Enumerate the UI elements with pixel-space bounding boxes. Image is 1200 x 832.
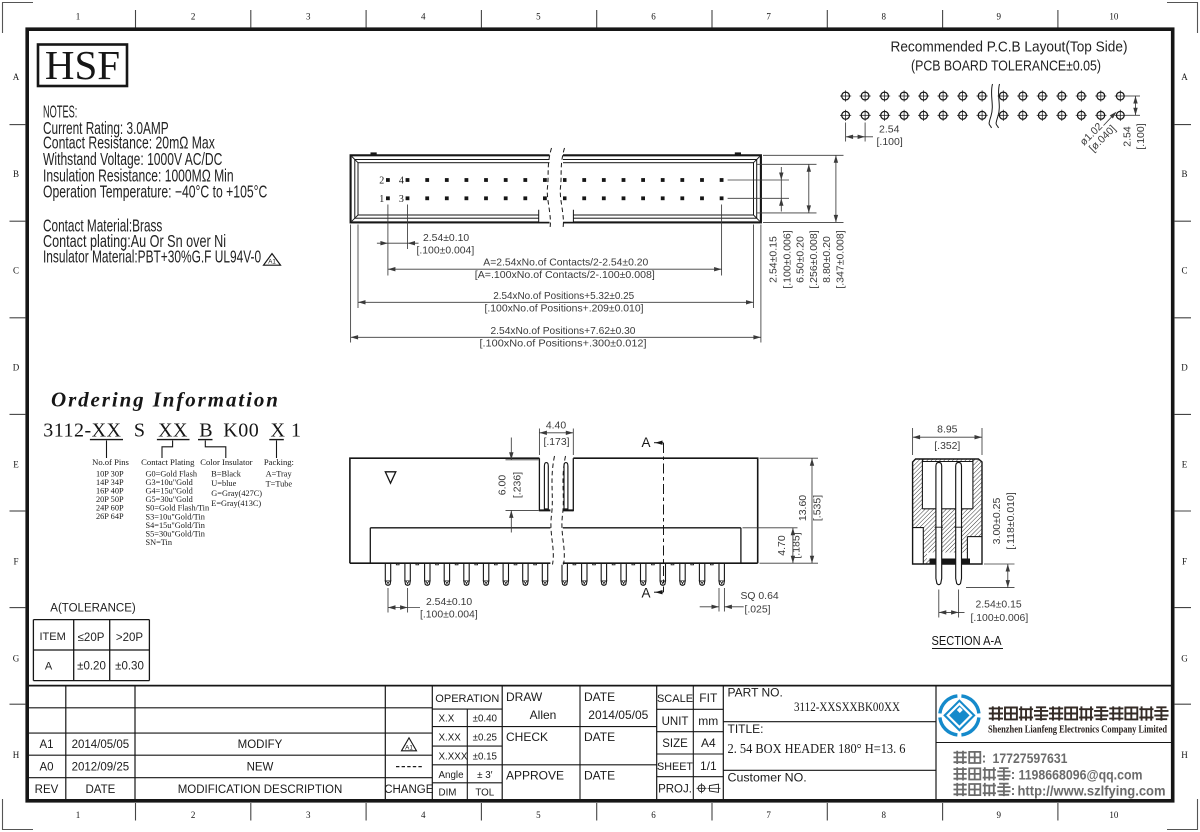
svg-text:9: 9 [997,12,1002,22]
svg-text:[.100±0.004]: [.100±0.004] [420,610,478,621]
svg-text:2.54±0.10: 2.54±0.10 [423,233,469,244]
svg-text:D: D [13,363,20,373]
svg-text:6: 6 [651,12,656,22]
svg-text:A4: A4 [701,736,716,750]
svg-text:DATE: DATE [584,769,615,783]
svg-text:H: H [13,750,20,760]
svg-text:XX: XX [92,419,122,441]
svg-text:[.100±0.004]: [.100±0.004] [417,246,475,257]
svg-text:DIM: DIM [439,787,457,798]
svg-text:2: 2 [379,176,384,187]
svg-text:3112-: 3112- [43,419,91,441]
svg-text:Shenzhen Lianfeng Electronics: Shenzhen Lianfeng Electronics Company Li… [988,723,1167,735]
svg-text:DATE: DATE [584,730,615,744]
svg-text:E: E [13,460,19,470]
svg-text:SN=Tin: SN=Tin [146,538,173,547]
svg-text:CHANGE: CHANGE [384,784,434,796]
svg-text:B: B [13,169,19,179]
svg-text:MODIFY: MODIFY [238,739,283,751]
svg-text:SECTION A-A: SECTION A-A [932,634,1003,648]
svg-text:PART NO.: PART NO. [728,685,783,699]
svg-text:[.173]: [.173] [544,437,570,448]
svg-text:Operation Temperature: −40°C t: Operation Temperature: −40°C to +105°C [43,182,267,202]
svg-text:E=Gray(413C): E=Gray(413C) [211,499,261,508]
svg-text:Recommended P.C.B Layout(Top S: Recommended P.C.B Layout(Top Side) [891,40,1128,56]
svg-text:6: 6 [651,810,656,820]
svg-text::: : [1011,783,1016,798]
svg-text:[.352]: [.352] [934,441,960,452]
svg-text:H: H [1181,750,1188,760]
svg-text:[.100xNo.of Positions+.209±0.0: [.100xNo.of Positions+.209±0.010] [485,304,644,315]
svg-text:SCALE: SCALE [657,693,693,705]
svg-text:[.100]: [.100] [877,136,903,148]
svg-text:F: F [13,556,18,566]
svg-text:Angle: Angle [439,770,465,781]
svg-text:S: S [134,419,146,441]
svg-text:FIT: FIT [699,691,718,705]
svg-text:1/1: 1/1 [700,759,717,773]
svg-text:[.100]: [.100] [1135,123,1147,149]
svg-text:TOL: TOL [475,787,494,798]
svg-text:3: 3 [306,12,311,22]
svg-text:A1: A1 [268,259,276,266]
svg-text:DATE: DATE [584,690,615,704]
svg-text:≤20P: ≤20P [78,632,105,644]
svg-text:1: 1 [379,194,384,205]
svg-text:6.00: 6.00 [496,475,508,496]
svg-text:Color Insulator: Color Insulator [200,457,252,467]
svg-text:A1: A1 [405,744,413,751]
svg-text:F: F [1182,556,1187,566]
svg-text:K00: K00 [223,419,259,441]
svg-text:G=Gray(427C): G=Gray(427C) [211,489,262,498]
svg-text:2.54: 2.54 [1122,126,1134,147]
svg-text:±0.25: ±0.25 [473,733,498,744]
svg-text:2. 54 BOX HEADER 180° H=13. 6: 2. 54 BOX HEADER 180° H=13. 6 [728,741,906,756]
svg-text:C: C [1181,266,1187,276]
svg-text:[.256±0.008]: [.256±0.008] [808,230,820,288]
svg-text::: : [1011,767,1016,782]
svg-text:[.100±0.006]: [.100±0.006] [782,230,794,288]
svg-text:REV: REV [35,784,59,796]
svg-text:A: A [45,660,53,672]
svg-text:8: 8 [881,810,886,820]
svg-text:No.of Pins: No.of Pins [92,457,129,467]
svg-text:13.60: 13.60 [797,495,809,521]
svg-text:>20P: >20P [116,632,144,644]
svg-text:A: A [641,435,650,450]
svg-text:Contact Plating: Contact Plating [141,457,195,467]
svg-text:8: 8 [881,12,886,22]
svg-text:7: 7 [766,12,771,22]
svg-text:XX: XX [158,419,188,441]
svg-text:1198668096@qq.com: 1198668096@qq.com [1019,767,1143,783]
svg-text:mm: mm [698,714,718,728]
svg-text:APPROVE: APPROVE [506,769,564,783]
svg-text:G: G [1181,653,1188,663]
svg-text:4.40: 4.40 [546,420,566,431]
svg-text:B: B [1181,169,1187,179]
svg-text:3: 3 [306,810,311,820]
svg-text:A(TOLERANCE): A(TOLERANCE) [50,602,136,614]
svg-text:PROJ.: PROJ. [658,784,692,796]
svg-text:SIZE: SIZE [662,738,688,750]
svg-text:Packing:: Packing: [264,457,294,467]
svg-text:2012/09/25: 2012/09/25 [72,762,130,774]
svg-text:±0.40: ±0.40 [473,714,498,725]
svg-text:2.54xNo.of Positions+7.62±0.30: 2.54xNo.of Positions+7.62±0.30 [491,326,636,337]
svg-text:10: 10 [1109,810,1119,820]
svg-text:HSF: HSF [45,42,120,88]
svg-text:4: 4 [421,810,426,820]
svg-text:U=blue: U=blue [211,479,236,488]
svg-text:http://www.szlfying.com: http://www.szlfying.com [1018,782,1166,798]
svg-text:A=Tray: A=Tray [266,469,293,478]
svg-text:UNIT: UNIT [662,716,689,728]
svg-text:2: 2 [191,12,196,22]
svg-text:SHEET: SHEET [657,761,693,773]
svg-text:[.100xNo.of Positions+.300±0.0: [.100xNo.of Positions+.300±0.012] [480,339,647,350]
svg-text:26P 64P: 26P 64P [96,512,124,521]
svg-text:DRAW: DRAW [506,690,543,704]
svg-text:±0.15: ±0.15 [473,752,498,763]
svg-text:[.185]: [.185] [791,532,803,558]
svg-text:B=Black: B=Black [211,469,241,478]
svg-text:X.X: X.X [439,714,455,725]
svg-text:Customer NO.: Customer NO. [728,771,807,785]
svg-text:A=2.54xNo.of Contacts/2-2.54±0: A=2.54xNo.of Contacts/2-2.54±0.20 [483,258,648,269]
svg-text:A0: A0 [39,762,53,774]
svg-text:[.236]: [.236] [511,472,523,498]
svg-text:A: A [641,586,650,601]
svg-text:2.54±0.10: 2.54±0.10 [426,597,472,608]
svg-text:3112-XXSXXBK00XX: 3112-XXSXXBK00XX [794,699,901,714]
svg-text:2.54±0.15: 2.54±0.15 [976,600,1022,611]
svg-text:3: 3 [399,194,404,205]
svg-text:[A=.100xNo.of Contacts/2-.100±: [A=.100xNo.of Contacts/2-.100±0.008] [475,270,655,281]
svg-text:X.XX: X.XX [439,733,462,744]
svg-text:1: 1 [291,419,302,441]
svg-text:7: 7 [766,810,771,820]
svg-text:Allen: Allen [530,708,557,722]
svg-text:3.00±0.25: 3.00±0.25 [991,498,1003,545]
svg-text:4: 4 [421,12,426,22]
svg-text:TITLE:: TITLE: [728,722,764,736]
svg-text:8.95: 8.95 [937,425,957,436]
svg-text:10: 10 [1109,12,1119,22]
svg-text:X.XXX: X.XXX [439,752,468,763]
svg-text:[.100±0.006]: [.100±0.006] [971,613,1029,624]
svg-text:DATE: DATE [85,784,115,796]
svg-text:CHECK: CHECK [506,730,548,744]
svg-text:2.54: 2.54 [879,123,900,135]
svg-text:D: D [1181,363,1188,373]
svg-text:4: 4 [399,176,404,187]
svg-text:6.50±0.20: 6.50±0.20 [795,236,807,283]
svg-text:ITEM: ITEM [40,631,66,643]
svg-text:(PCB BOARD TOLERANCE±0.05): (PCB BOARD TOLERANCE±0.05) [911,59,1101,75]
svg-text:[.118±0.010]: [.118±0.010] [1005,492,1017,550]
svg-text:17727597631: 17727597631 [993,750,1068,766]
svg-text:2: 2 [191,810,196,820]
svg-text:X: X [271,419,286,441]
svg-text:4.70: 4.70 [776,535,788,556]
svg-text:SQ 0.64: SQ 0.64 [741,591,779,602]
svg-text:±0.20: ±0.20 [77,660,106,672]
svg-text:MODIFICATION DESCRIPTION: MODIFICATION DESCRIPTION [178,784,343,796]
svg-text:[.347±0.008]: [.347±0.008] [835,230,847,288]
svg-text:± 3′: ± 3′ [477,770,493,781]
svg-text:Ordering Information: Ordering Information [51,388,280,412]
svg-text:±0.30: ±0.30 [115,660,144,672]
svg-text:2.54xNo.of Positions+5.32±0.25: 2.54xNo.of Positions+5.32±0.25 [493,291,634,302]
svg-text:Insulator Material:PBT+30%G.F: Insulator Material:PBT+30%G.F UL94V-0 [43,247,261,267]
svg-text:A: A [1181,72,1188,82]
svg-text:B: B [199,419,213,441]
svg-text:G: G [13,653,20,663]
svg-text:A: A [13,72,20,82]
svg-text:5: 5 [536,810,541,820]
svg-text:5: 5 [536,12,541,22]
svg-text:[.025]: [.025] [745,604,771,615]
svg-text:8.80±0.20: 8.80±0.20 [821,236,833,283]
svg-text:2014/05/05: 2014/05/05 [588,708,648,722]
svg-text:2.54±0.15: 2.54±0.15 [767,236,779,283]
svg-text:1: 1 [76,12,81,22]
svg-text:A1: A1 [39,739,53,751]
svg-text:T=Tube: T=Tube [266,479,293,488]
svg-text::: : [982,751,987,766]
svg-text:9: 9 [997,810,1002,820]
svg-text:NEW: NEW [247,762,274,774]
svg-text:1: 1 [76,810,81,820]
svg-text:E: E [1182,460,1188,470]
svg-text:2014/05/05: 2014/05/05 [72,739,130,751]
svg-text:C: C [13,266,19,276]
svg-text:OPERATION: OPERATION [435,693,499,705]
svg-text:[.535]: [.535] [812,495,824,521]
